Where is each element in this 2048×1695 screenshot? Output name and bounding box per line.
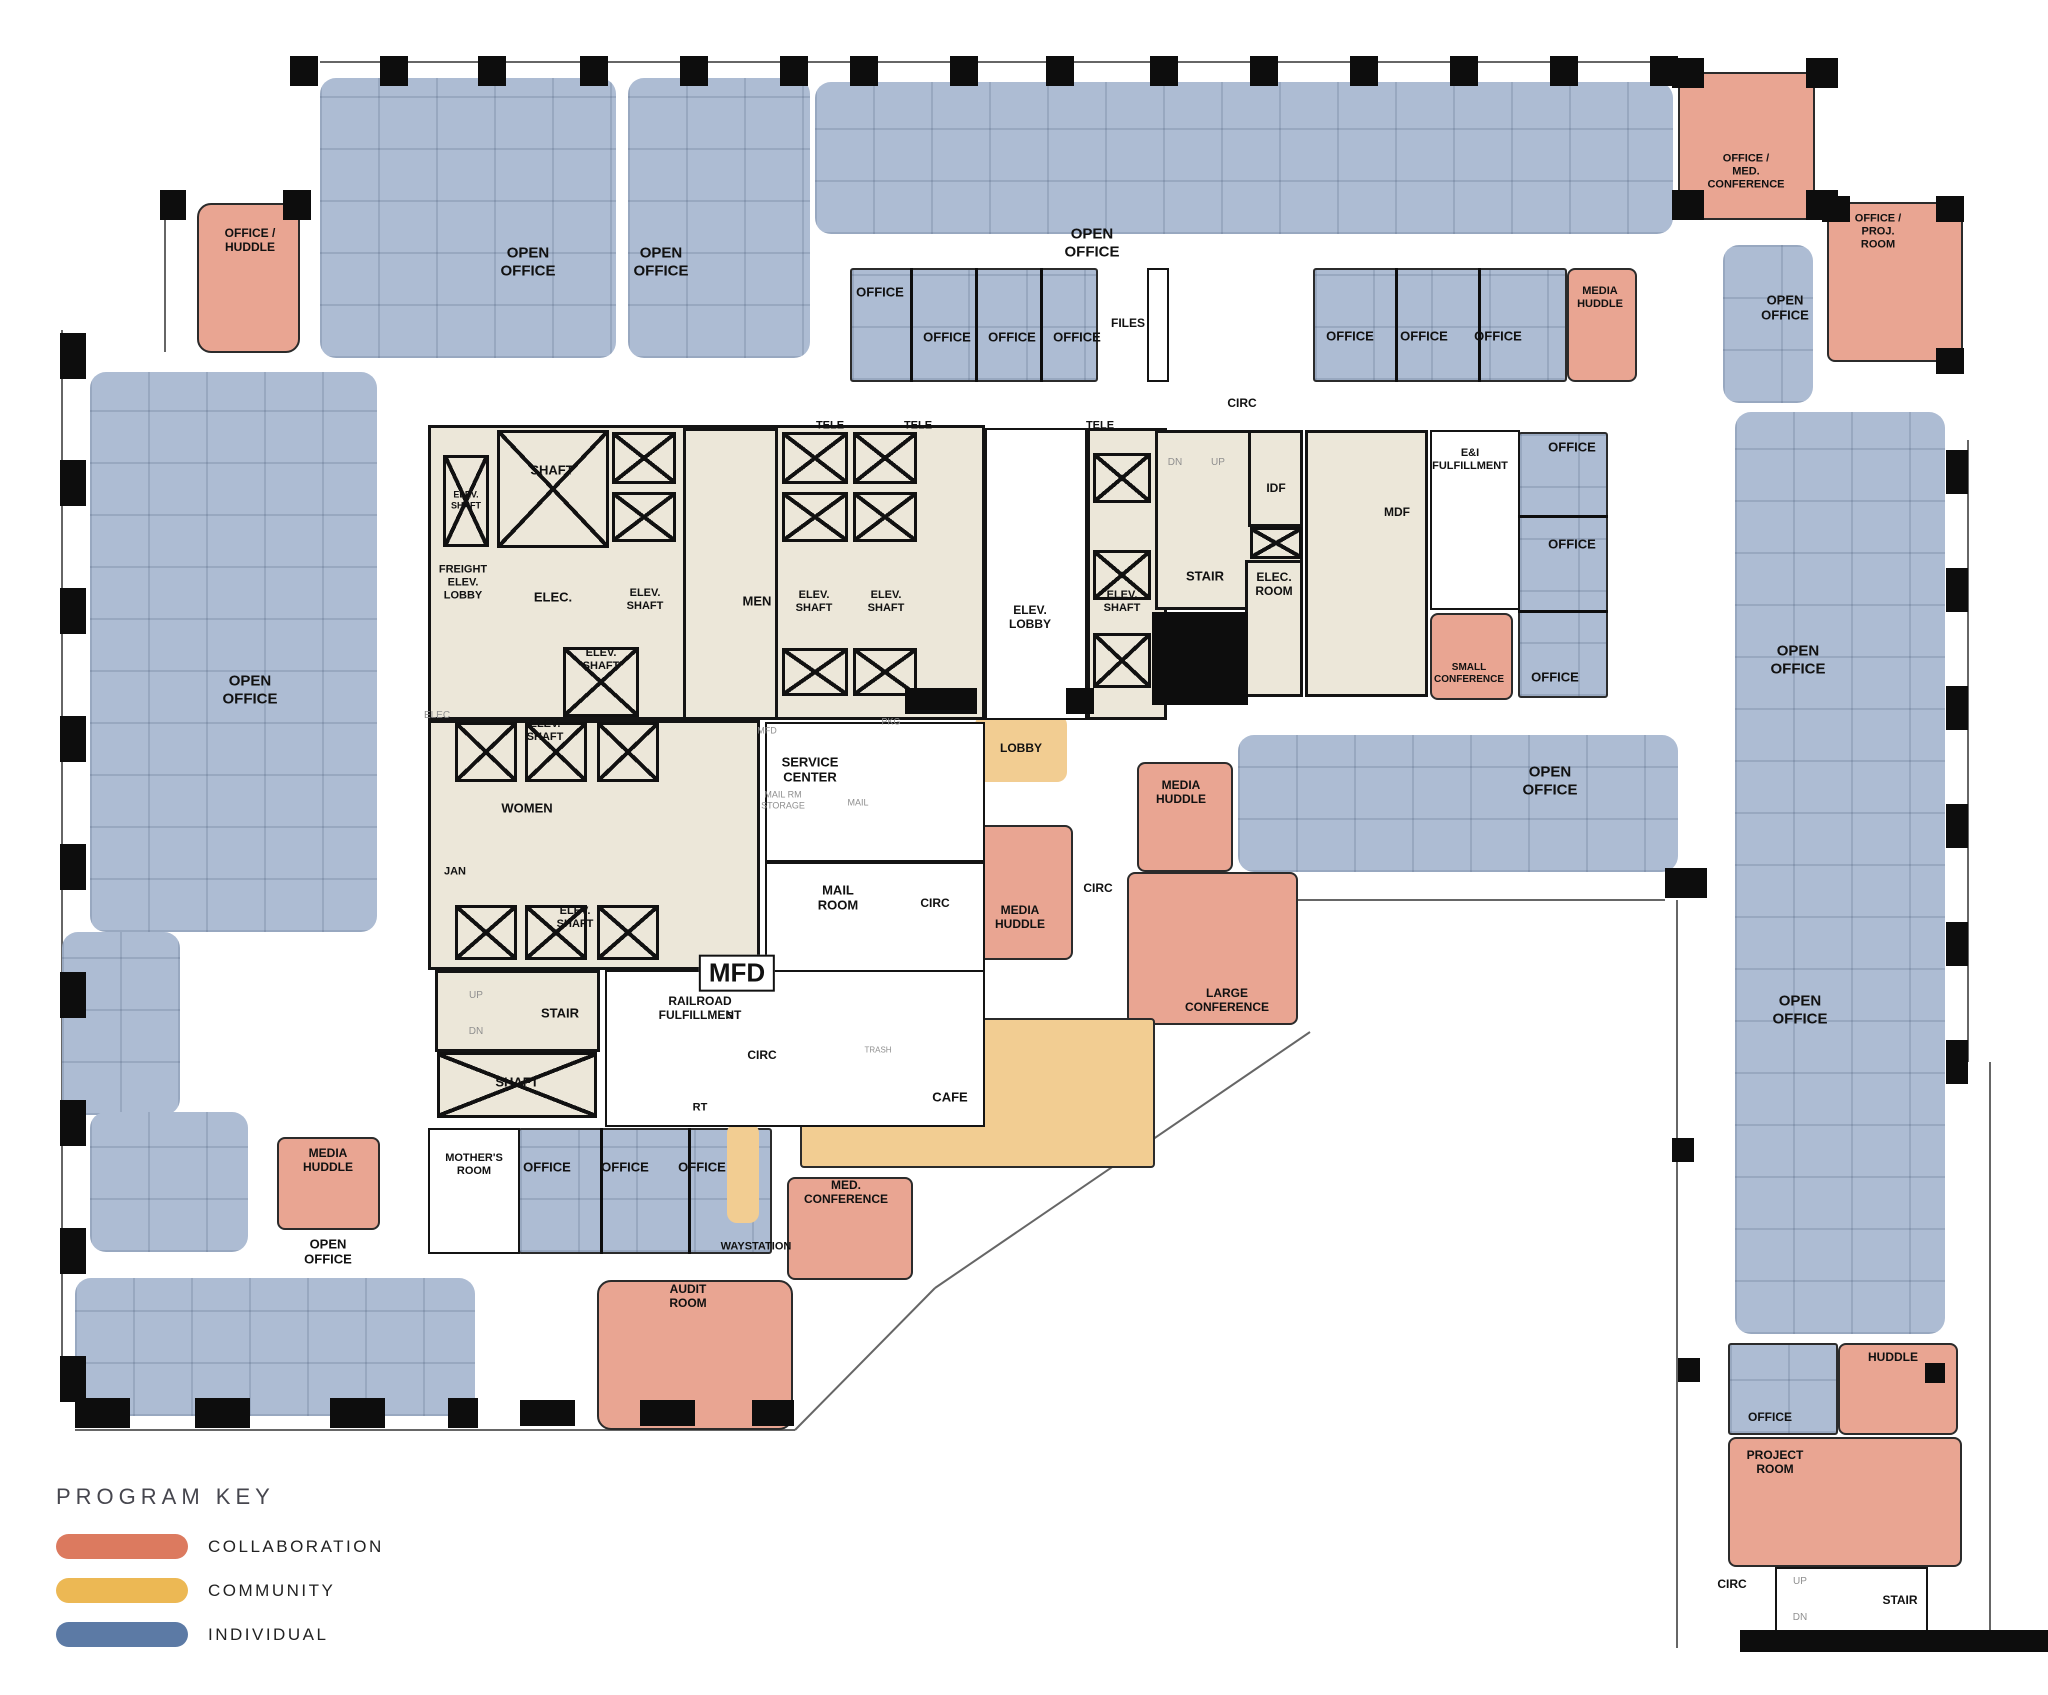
shaft-box: [1250, 527, 1302, 559]
label-stair: STAIR: [541, 1005, 579, 1020]
wall-column: [1946, 804, 1968, 848]
label-rt: RT: [693, 1102, 708, 1115]
label-office: OFFICE: [1053, 329, 1101, 344]
label-elev-lobby: ELEV. LOBBY: [1009, 603, 1051, 631]
room-open-office-sw-band: [75, 1278, 475, 1416]
wall-column: [1946, 450, 1968, 494]
wall-column: [600, 1128, 603, 1254]
room-open-office-west-strip: [62, 932, 180, 1115]
label-elev-shaft: ELEV. SHAFT: [583, 647, 620, 673]
room-open-office-nw-b: [628, 78, 810, 358]
label-mail-room: MAIL ROOM: [818, 883, 858, 914]
label-up: UP: [469, 990, 483, 1002]
shaft-box: [497, 430, 609, 548]
legend-items: COLLABORATIONCOMMUNITYINDIVIDUAL: [56, 1534, 384, 1647]
room-open-office-east-strip: [1238, 735, 1678, 872]
label-stair: STAIR: [1882, 1593, 1917, 1607]
label-dn: DN: [469, 1026, 483, 1038]
label-mother-s-room: MOTHER'S ROOM: [445, 1152, 503, 1178]
room-offices-row-b: [1313, 268, 1567, 382]
shaft-box: [455, 905, 517, 960]
wall-column: [60, 972, 86, 1018]
wall-column: [1665, 868, 1707, 898]
shaft-box: [612, 432, 676, 484]
wall-column: [380, 56, 408, 86]
wall-column: [1806, 58, 1838, 88]
wall-column: [1806, 190, 1838, 220]
wall-column: [160, 190, 186, 220]
shaft-box: [853, 492, 917, 542]
label-elev-shaft: ELEV. SHAFT: [868, 589, 905, 615]
label-elec-room: ELEC. ROOM: [1255, 570, 1292, 598]
label-project-room: PROJECT ROOM: [1747, 1448, 1804, 1476]
wall-column: [850, 56, 878, 86]
shaft-box: [597, 722, 659, 782]
label-open-office: OPEN OFFICE: [1771, 642, 1826, 677]
wall-column: [1678, 1358, 1700, 1382]
label-elev-shaft: ELEV. SHAFT: [627, 587, 664, 613]
wall-column: [478, 56, 506, 86]
room-open-office-west: [90, 372, 377, 932]
label-audit-room: AUDIT ROOM: [669, 1282, 706, 1310]
wall-column: [1350, 56, 1378, 86]
wall-column: [1046, 56, 1074, 86]
wall-column: [975, 268, 978, 382]
room-small-conference: [1430, 613, 1513, 700]
legend-swatch-collaboration: [56, 1534, 188, 1559]
wall-column: [60, 716, 86, 762]
label-elev-shaft: ELEV. SHAFT: [557, 905, 594, 931]
wall-column: [60, 1100, 86, 1146]
label-mail: MAIL: [847, 798, 868, 809]
room-open-office-nw-a: [320, 78, 616, 358]
label-circ: CIRC: [1083, 881, 1112, 895]
label-mail-rm-storage: MAIL RM STORAGE: [761, 789, 805, 810]
label-lobby: LOBBY: [1000, 741, 1042, 755]
label-open-office: OPEN OFFICE: [1523, 763, 1578, 798]
wall-column: [1740, 1630, 2048, 1652]
label-office-proj-room: OFFICE / PROJ. ROOM: [1855, 213, 1901, 252]
label-idf: IDF: [1266, 481, 1285, 495]
label-freight-elev-lobby: FREIGHT ELEV. LOBBY: [439, 564, 487, 603]
legend-label-collaboration: COLLABORATION: [208, 1537, 384, 1557]
legend-label-individual: INDIVIDUAL: [208, 1625, 328, 1645]
label-pkg: PKG: [881, 717, 900, 728]
label-office: OFFICE: [1474, 328, 1522, 343]
wall-column: [1152, 612, 1248, 705]
label-trash: TRASH: [864, 1045, 891, 1054]
wall-column: [1150, 56, 1178, 86]
room-open-office-north-band: [815, 82, 1673, 234]
label-circ: CIRC: [1717, 1577, 1746, 1591]
label-cafe: CAFE: [932, 1089, 967, 1104]
label-waystation: WAYSTATION: [721, 1241, 792, 1254]
wall-column: [1040, 268, 1043, 382]
label-office: OFFICE: [1748, 1410, 1792, 1424]
legend-item-community: COMMUNITY: [56, 1578, 384, 1603]
wall-column: [330, 1398, 385, 1428]
legend-item-individual: INDIVIDUAL: [56, 1622, 384, 1647]
wall-column: [780, 56, 808, 86]
room-open-office-sw-block: [90, 1112, 248, 1252]
wall-column: [1066, 688, 1094, 714]
wall-column: [1395, 268, 1398, 382]
label-shaft: SHAFT: [495, 1074, 538, 1089]
wall-column: [1946, 1040, 1968, 1084]
label-open-office: OPEN OFFICE: [223, 672, 278, 707]
wall-column: [1946, 686, 1968, 730]
wall-column: [448, 1398, 478, 1428]
wall-column: [60, 333, 86, 379]
wall-column: [1250, 56, 1278, 86]
label-elec: ELEC: [424, 710, 450, 722]
label-office: OFFICE: [1548, 439, 1596, 454]
wall-column: [1518, 610, 1608, 613]
label-dn: DN: [1793, 1612, 1807, 1624]
label-tele: TELE: [816, 420, 844, 433]
label-elev-shaft: ELEV. SHAFT: [527, 718, 564, 744]
label-office: OFFICE: [601, 1159, 649, 1174]
wall-column: [60, 1356, 86, 1402]
wall-column: [60, 844, 86, 890]
label-men: MEN: [743, 593, 772, 608]
label-open-office: OPEN OFFICE: [304, 1237, 352, 1268]
wall-column: [1925, 1363, 1945, 1383]
wall-column: [1450, 56, 1478, 86]
legend-item-collaboration: COLLABORATION: [56, 1534, 384, 1559]
wall-column: [1946, 568, 1968, 612]
shaft-box: [597, 905, 659, 960]
label-media-huddle: MEDIA HUDDLE: [1156, 778, 1206, 806]
label-up: UP: [1793, 1576, 1807, 1588]
label-elev-shaft: ELEV. SHAFT: [451, 489, 481, 510]
label-open-office: OPEN OFFICE: [1761, 293, 1809, 324]
label-mdf: MDF: [1384, 505, 1410, 519]
wall-column: [1936, 348, 1964, 374]
legend-label-community: COMMUNITY: [208, 1581, 335, 1601]
wall-column: [290, 56, 318, 86]
label-office: OFFICE: [856, 284, 904, 299]
label-office: OFFICE: [1548, 536, 1596, 551]
legend-title: PROGRAM KEY: [56, 1484, 384, 1510]
wall-column: [520, 1400, 575, 1426]
label-service-center: SERVICE CENTER: [782, 755, 839, 786]
shaft-box: [455, 722, 517, 782]
label-office-med-conference: OFFICE / MED. CONFERENCE: [1707, 153, 1784, 192]
wall-column: [60, 1228, 86, 1274]
label-shaft: SHAFT: [530, 462, 573, 477]
wall-column: [1672, 190, 1704, 220]
wall-column: [1936, 196, 1964, 222]
label-up: UP: [1211, 457, 1225, 469]
room-men-room: [683, 428, 778, 720]
room-mdf: [1305, 430, 1428, 697]
shaft-box: [782, 648, 848, 696]
wall-column: [1946, 922, 1968, 966]
room-mothers-room: [428, 1128, 520, 1254]
label-women: WOMEN: [501, 800, 552, 815]
window-wall-segment: [795, 1288, 935, 1430]
room-open-office-east: [1735, 412, 1945, 1334]
label-office: OFFICE: [1400, 328, 1448, 343]
label-tele: TELE: [904, 420, 932, 433]
label-office-huddle: OFFICE / HUDDLE: [225, 226, 276, 254]
shaft-box: [612, 492, 676, 542]
label-open-office: OPEN OFFICE: [1065, 225, 1120, 260]
shaft-box: [853, 432, 917, 484]
wall-column: [910, 268, 913, 382]
wall-column: [905, 688, 977, 714]
label-office: OFFICE: [678, 1159, 726, 1174]
label-huddle: HUDDLE: [1868, 1350, 1918, 1364]
label-media-huddle: MEDIA HUDDLE: [995, 903, 1045, 931]
label-open-office: OPEN OFFICE: [634, 244, 689, 279]
room-open-office-ne: [1723, 245, 1813, 403]
wall-column: [752, 1400, 794, 1426]
wall-column: [640, 1400, 695, 1426]
room-elev-lobby: [985, 428, 1087, 720]
label-open-office: OPEN OFFICE: [501, 244, 556, 279]
room-files-strip: [1147, 268, 1169, 382]
label-small-conference: SMALL CONFERENCE: [1434, 662, 1504, 686]
label-elev-shaft: ELEV. SHAFT: [796, 589, 833, 615]
floor-plan-page: OPEN OFFICEOPEN OFFICEOPEN OFFICEOPEN OF…: [0, 0, 2048, 1695]
label-office: OFFICE: [1326, 328, 1374, 343]
label-circ: CIRC: [920, 896, 949, 910]
legend-swatch-community: [56, 1578, 188, 1603]
shaft-box: [782, 432, 848, 484]
label-e-i-fulfillment: E&I FULFILLMENT: [1432, 447, 1508, 473]
label-jan: JAN: [444, 866, 466, 879]
wall-column: [195, 1398, 250, 1428]
legend-swatch-individual: [56, 1622, 188, 1647]
label-s: S: [727, 1011, 733, 1022]
shaft-box: [1093, 633, 1151, 688]
wall-column: [680, 56, 708, 86]
label-elec: ELEC.: [534, 589, 572, 604]
wall-column: [1478, 268, 1481, 382]
wall-column: [580, 56, 608, 86]
label-office: OFFICE: [923, 329, 971, 344]
wall-column: [1672, 58, 1704, 88]
label-media-huddle: MEDIA HUDDLE: [303, 1146, 353, 1174]
wall-column: [1518, 515, 1608, 518]
program-key-legend: PROGRAM KEY COLLABORATIONCOMMUNITYINDIVI…: [56, 1484, 384, 1666]
label-office: OFFICE: [1531, 669, 1579, 684]
wall-column: [1672, 1138, 1694, 1162]
room-idf: [1248, 430, 1303, 527]
wall-column: [1550, 56, 1578, 86]
wall-column: [60, 588, 86, 634]
label-elev-shaft: ELEV. SHAFT: [1104, 589, 1141, 615]
label-circ: CIRC: [1227, 396, 1256, 410]
label-open-office: OPEN OFFICE: [1773, 992, 1828, 1027]
label-circ: CIRC: [747, 1048, 776, 1062]
label-office: OFFICE: [988, 329, 1036, 344]
room-waystation: [727, 1123, 759, 1223]
wall-column: [60, 460, 86, 506]
wall-column: [75, 1398, 130, 1428]
shaft-box: [1093, 453, 1151, 503]
label-media-huddle: MEDIA HUDDLE: [1577, 285, 1623, 311]
shaft-box: [782, 492, 848, 542]
wall-column: [688, 1128, 691, 1254]
label-large-conference: LARGE CONFERENCE: [1185, 986, 1269, 1014]
label-med-conference: MED. CONFERENCE: [804, 1178, 888, 1206]
label-mfd: MFD: [699, 955, 775, 992]
label-stair: STAIR: [1186, 568, 1224, 583]
label-office: OFFICE: [523, 1159, 571, 1174]
wall-column: [950, 56, 978, 86]
room-offices-col-east: [1518, 432, 1608, 698]
label-tele: TELE: [1086, 420, 1114, 433]
wall-column: [283, 190, 311, 220]
label-dn: DN: [1168, 457, 1182, 469]
room-media-huddle-center: [970, 825, 1073, 960]
label-files: FILES: [1111, 316, 1145, 330]
label-mfd: MFD: [757, 726, 777, 737]
